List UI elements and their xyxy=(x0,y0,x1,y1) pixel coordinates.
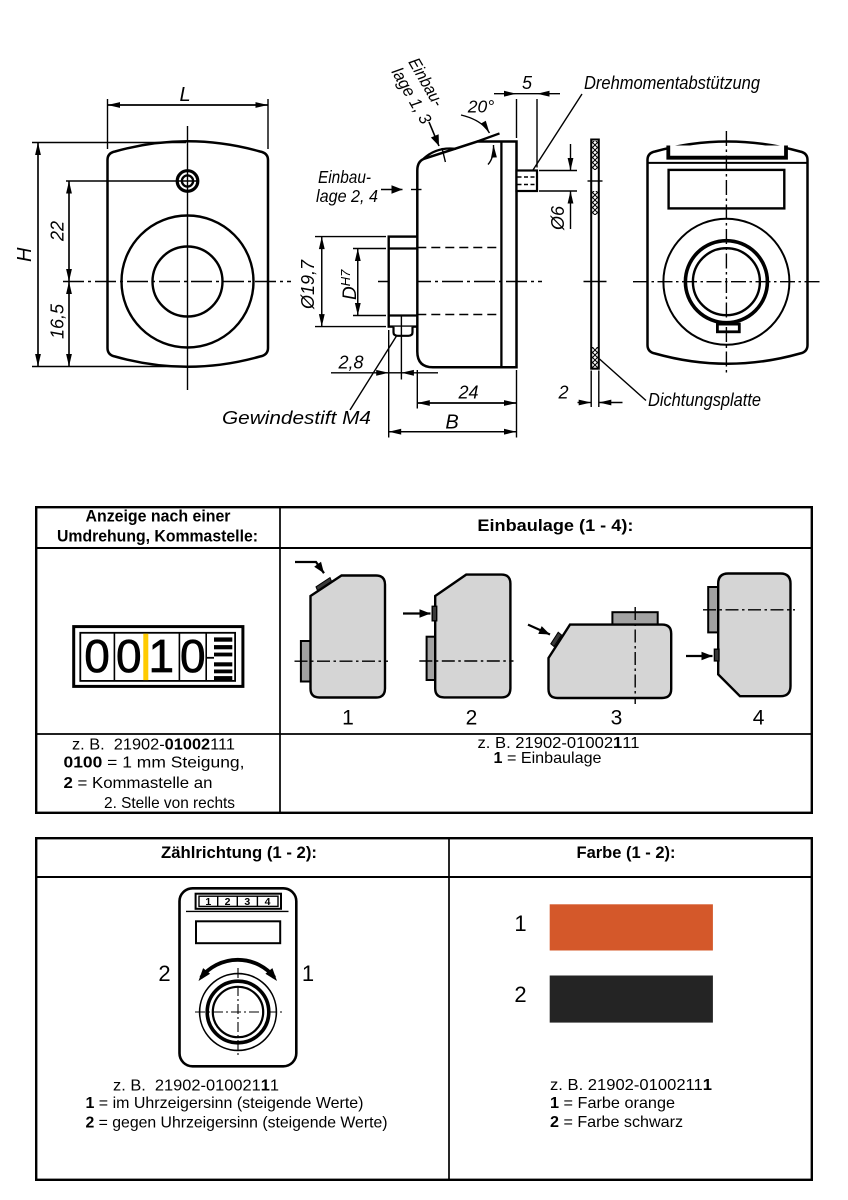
svg-text:1: 1 xyxy=(302,961,314,986)
svg-text:24: 24 xyxy=(457,383,478,403)
svg-text:2 = Farbe schwarz: 2 = Farbe schwarz xyxy=(550,1114,683,1131)
svg-text:0100 = 1 mm Steigung,: 0100 = 1 mm Steigung, xyxy=(64,755,245,772)
svg-text:3: 3 xyxy=(244,896,250,908)
svg-text:Drehmomentabstützung: Drehmomentabstützung xyxy=(584,73,760,93)
svg-text:1 = im Uhrzeigersinn (steigend: 1 = im Uhrzeigersinn (steigende Werte) xyxy=(86,1095,364,1112)
svg-text:4: 4 xyxy=(265,896,271,908)
svg-text:2,8: 2,8 xyxy=(337,353,363,373)
svg-text:2: 2 xyxy=(557,383,568,403)
svg-text:1: 1 xyxy=(149,630,175,682)
svg-text:B: B xyxy=(445,412,458,434)
svg-text:z. B. 21902-01002111: z. B. 21902-01002111 xyxy=(72,737,235,754)
svg-text:H: H xyxy=(14,247,36,262)
svg-text:2: 2 xyxy=(514,982,526,1007)
svg-text:Umdrehung, Kommastelle:: Umdrehung, Kommastelle: xyxy=(57,527,258,546)
svg-text:Einbaulage (1 - 4):: Einbaulage (1 - 4): xyxy=(477,516,633,535)
svg-text:Dichtungsplatte: Dichtungsplatte xyxy=(648,390,761,410)
svg-text:1 = Farbe orange: 1 = Farbe orange xyxy=(550,1095,675,1112)
svg-text:Zählrichtung (1 - 2):: Zählrichtung (1 - 2): xyxy=(161,843,317,862)
svg-text:Gewindestift M4: Gewindestift M4 xyxy=(222,407,371,428)
svg-text:Farbe (1 - 2):: Farbe (1 - 2): xyxy=(577,843,676,862)
svg-text:0: 0 xyxy=(84,630,110,682)
svg-text:0: 0 xyxy=(116,630,142,682)
svg-text:1: 1 xyxy=(514,911,526,936)
svg-text:2 = gegen Uhrzeigersinn (steig: 2 = gegen Uhrzeigersinn (steigende Werte… xyxy=(86,1115,388,1132)
svg-text:Anzeige nach einer: Anzeige nach einer xyxy=(86,507,231,526)
svg-text:1: 1 xyxy=(342,707,354,730)
svg-text:Ø6: Ø6 xyxy=(548,205,568,231)
svg-text:Ø19,7: Ø19,7 xyxy=(298,259,318,310)
svg-text:1: 1 xyxy=(205,896,211,908)
svg-text:5: 5 xyxy=(522,73,533,93)
svg-text:Einbau-: Einbau- xyxy=(318,167,371,187)
svg-text:2 = Kommastelle an: 2 = Kommastelle an xyxy=(64,775,213,792)
svg-text:0: 0 xyxy=(180,630,206,682)
svg-text:1 = Einbaulage: 1 = Einbaulage xyxy=(494,750,602,767)
svg-text:22: 22 xyxy=(48,221,68,242)
svg-text:3: 3 xyxy=(611,707,623,730)
svg-text:lage 2, 4: lage 2, 4 xyxy=(316,186,378,206)
svg-text:L: L xyxy=(179,84,190,106)
svg-text:2. Stelle von rechts: 2. Stelle von rechts xyxy=(104,795,235,812)
svg-text:2: 2 xyxy=(466,707,478,730)
svg-text:20°: 20° xyxy=(467,97,494,117)
svg-text:2: 2 xyxy=(225,896,231,908)
svg-text:z. B. 21902-01002111: z. B. 21902-01002111 xyxy=(113,1078,279,1095)
svg-text:z. B. 21902-01002111: z. B. 21902-01002111 xyxy=(550,1077,712,1094)
svg-text:2: 2 xyxy=(158,961,170,986)
svg-text:16,5: 16,5 xyxy=(48,303,68,339)
svg-text:4: 4 xyxy=(753,707,765,730)
